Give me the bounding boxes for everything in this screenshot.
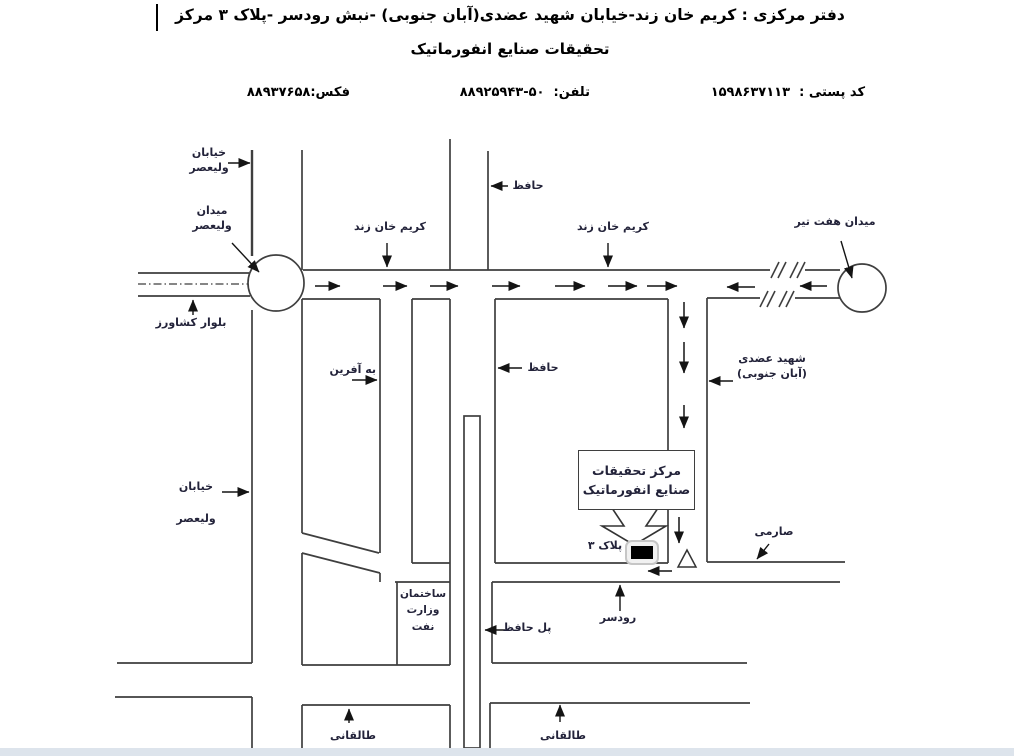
haft-tir-roundabout — [838, 264, 886, 312]
telephone: تلفن: ۸۸۹۲۵۹۴۳-۵۰ — [420, 85, 590, 100]
valiasr-roundabout — [248, 255, 304, 311]
map-page: دفتر مرکزی : کریم خان زند-خیابان شهید عض… — [0, 0, 1014, 756]
label-valiasr-square: میدان ولیعصر — [186, 203, 238, 234]
label-taleghani-west: طالقانی — [330, 728, 376, 743]
street-map-canvas — [0, 0, 1014, 756]
fax: فکس:۸۸۹۳۷۶۵۸ — [190, 85, 350, 100]
label-rudsar: رودسر — [594, 610, 642, 625]
label-valiasr-street-mid: خیابان ولیعصر — [170, 471, 222, 535]
label-hafez-bridge: پل حافظ — [502, 620, 552, 635]
label-oil-ministry-building: ساختمان وزارت نفت — [399, 586, 447, 635]
entrance-triangle-icon — [678, 550, 696, 567]
building-marker — [626, 541, 658, 564]
label-be-afarin: به آفرین — [330, 362, 376, 377]
page-title-line1: دفتر مرکزی : کریم خان زند-خیابان شهید عض… — [150, 6, 870, 24]
label-taleghani-east: طالقانی — [540, 728, 586, 743]
label-hafez-north: حافظ — [510, 178, 546, 193]
label-keshavarz-blvd: بلوار کشاورز — [146, 315, 236, 330]
label-shahid-azodi: شهید عضدی (آبان جنوبی) — [730, 351, 814, 382]
label-pointer-arrows — [193, 163, 852, 723]
label-hafez-mid: حافظ — [524, 360, 562, 375]
road-break-marks — [760, 262, 805, 307]
page-title-line2: تحقیقات صنایع انفورماتیک — [150, 40, 870, 58]
label-karim-khan-west: کریم خان زند — [350, 219, 430, 234]
label-saremi: صارمی — [750, 524, 798, 539]
research-center-callout: مرکز تحقیقات صنایع انفورماتیک — [578, 450, 695, 510]
window-bottom-strip — [0, 748, 1014, 756]
label-haft-tir-square: میدان هفت تیر — [788, 214, 882, 229]
label-plaque-3: پلاک ۳ — [584, 538, 626, 553]
hafez-bridge — [464, 416, 480, 748]
label-karim-khan-east: کریم خان زند — [573, 219, 653, 234]
label-valiasr-street-north: خیابان ولیعصر — [183, 145, 235, 176]
postal-code: کد پستی : ۱۵۹۸۶۳۷۱۱۳ — [630, 85, 865, 100]
